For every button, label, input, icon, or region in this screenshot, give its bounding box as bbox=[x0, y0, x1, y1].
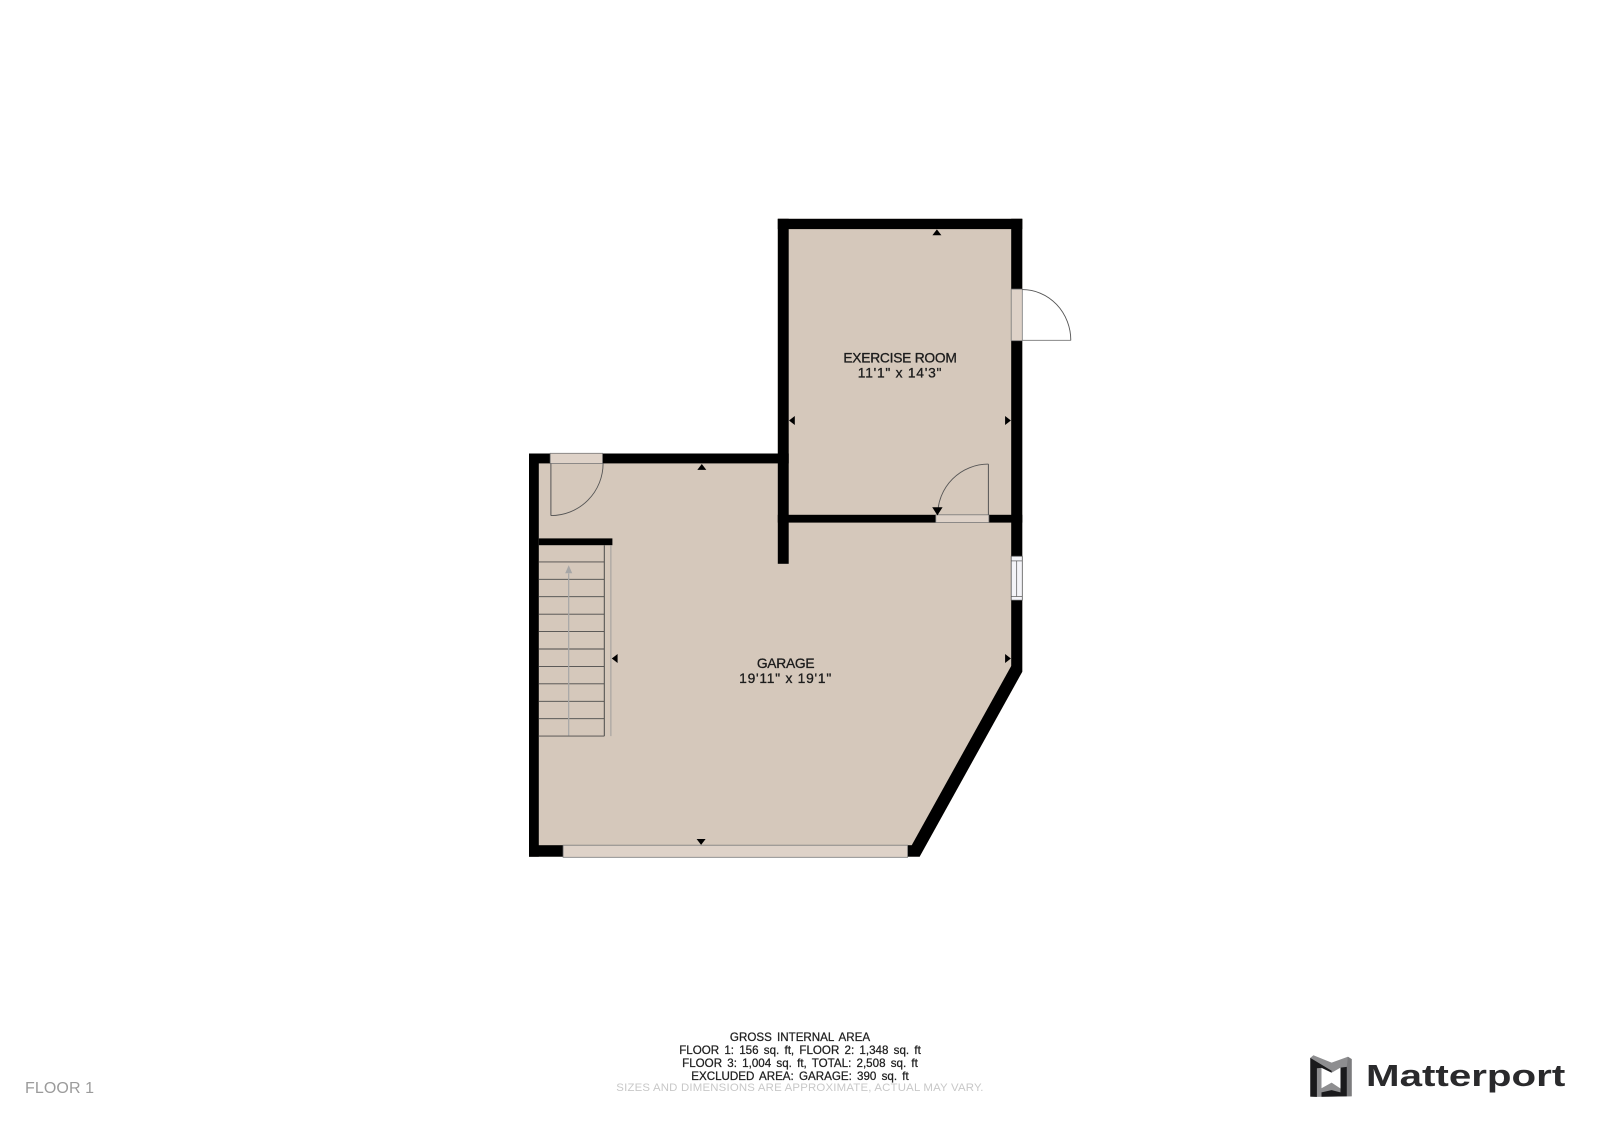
svg-text:EXERCISE ROOM: EXERCISE ROOM bbox=[843, 350, 956, 365]
svg-text:GARAGE: GARAGE bbox=[757, 656, 815, 671]
svg-text:11'1" x 14'3": 11'1" x 14'3" bbox=[858, 366, 942, 381]
svg-text:19'11" x 19'1": 19'11" x 19'1" bbox=[739, 671, 832, 686]
